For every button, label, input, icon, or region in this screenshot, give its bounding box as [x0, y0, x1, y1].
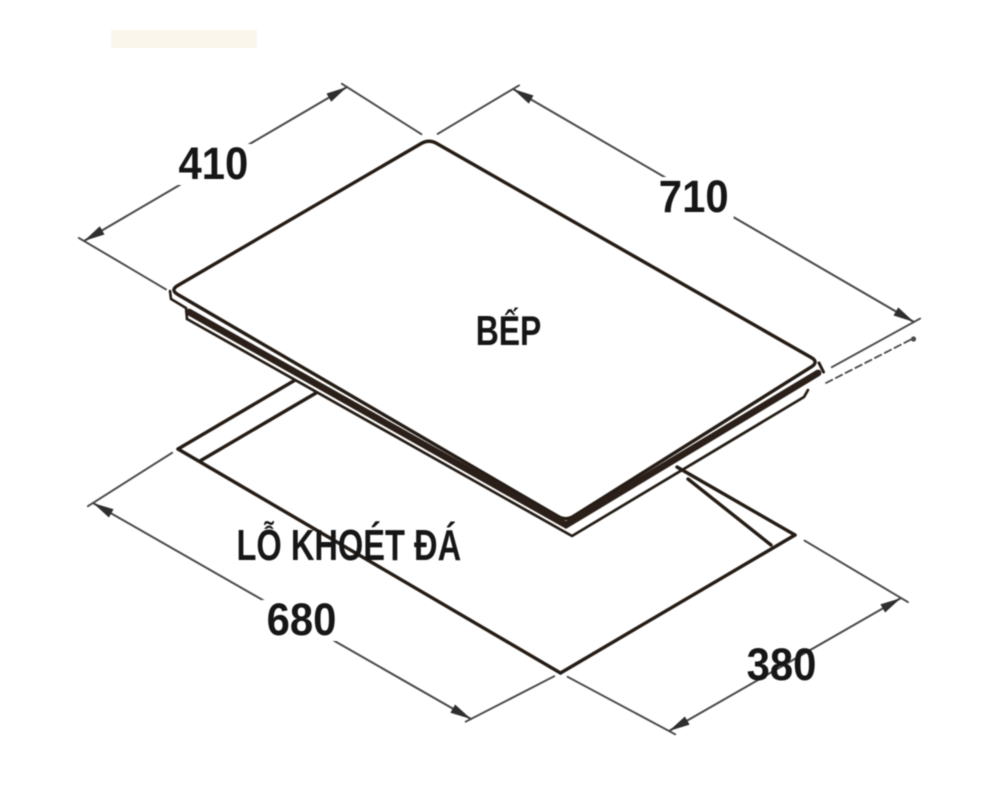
- svg-text:LỖ KHOÉT ĐÁ: LỖ KHOÉT ĐÁ: [236, 519, 461, 570]
- svg-text:410: 410: [178, 140, 248, 190]
- svg-text:680: 680: [267, 596, 337, 646]
- svg-text:BẾP: BẾP: [476, 307, 542, 354]
- svg-text:380: 380: [747, 641, 817, 691]
- svg-text:710: 710: [659, 173, 729, 223]
